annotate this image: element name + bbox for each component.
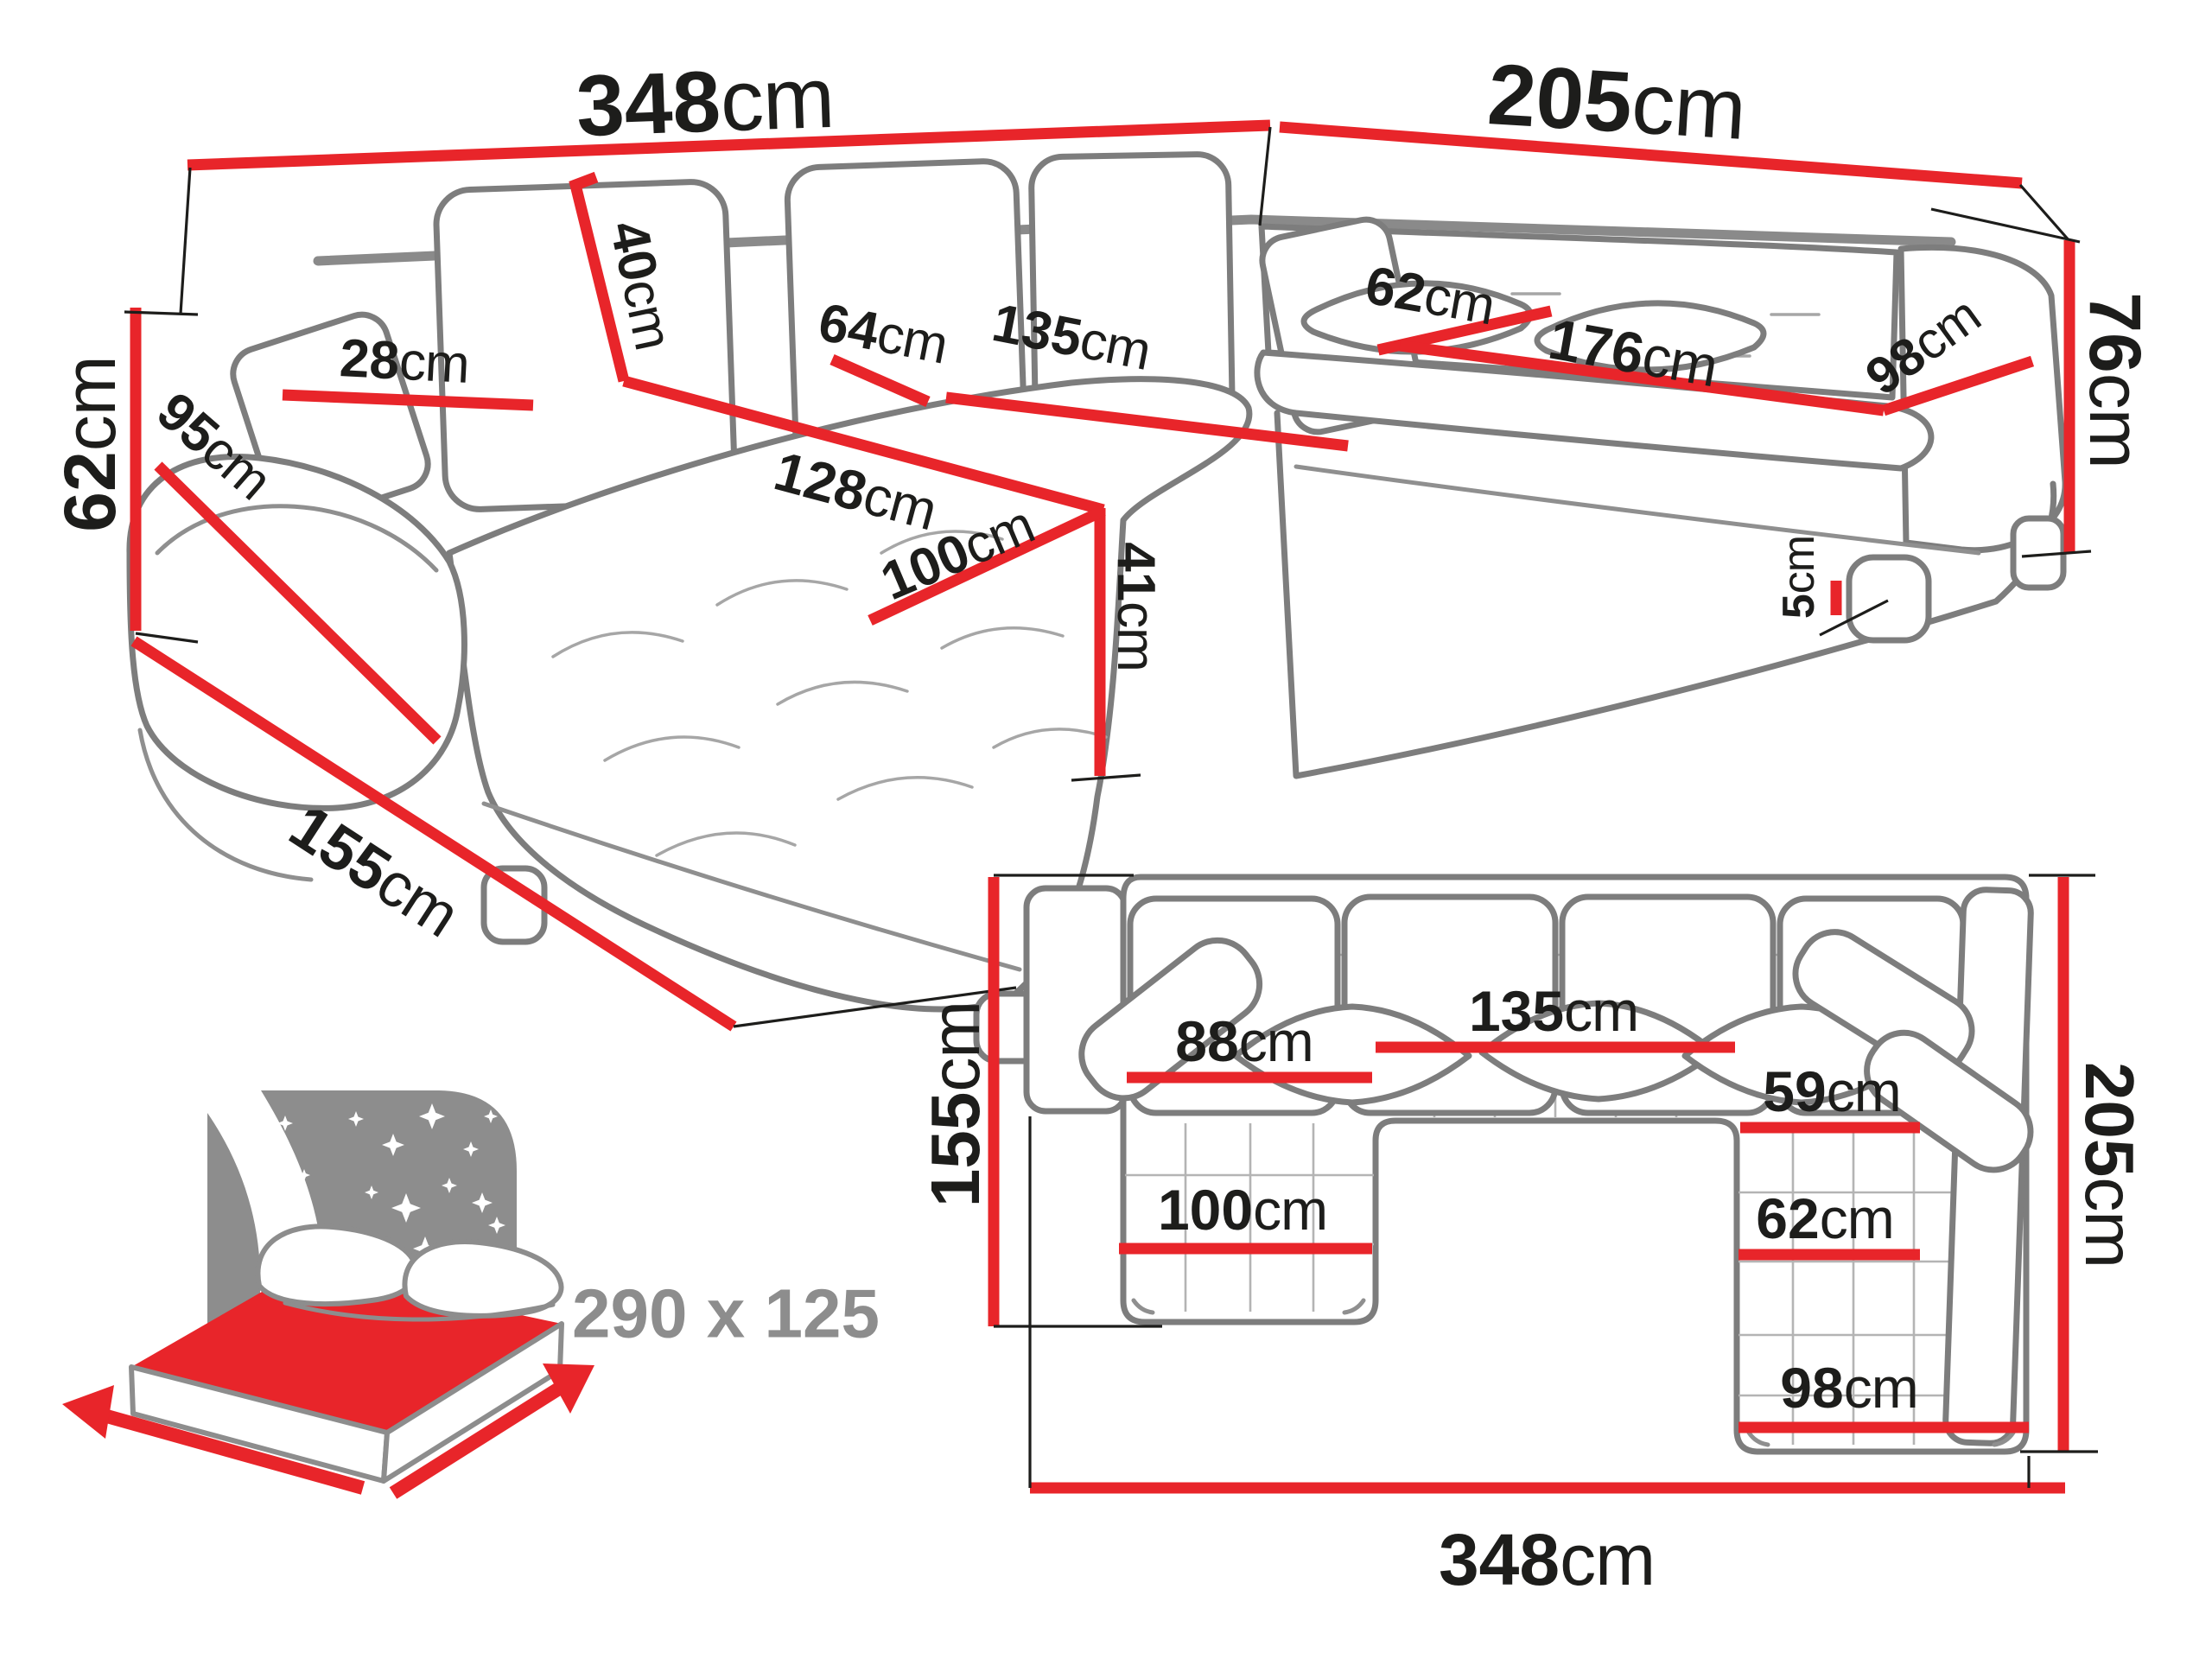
plan-label-right-seat-width: 59cm <box>1763 1059 1900 1123</box>
label-side-depth: 155cm <box>277 791 470 950</box>
label-back-width-left: 348cm <box>575 49 836 155</box>
plan-label-center-width: 135cm <box>1469 979 1638 1043</box>
sleeping-area-label: 290 x 125 <box>572 1275 880 1352</box>
sofa-leg <box>1849 557 1929 640</box>
sofa-bed-icon: 290 x 125 <box>62 1090 880 1493</box>
plan-label-total-depth: 205cm <box>2072 1062 2149 1268</box>
label-seat-height: 41cm <box>1107 542 1166 671</box>
width-arrow-head <box>62 1385 114 1439</box>
diagram-svg: 348cm 205cm 62cm 155cm 95cm 28cm 40cm 64… <box>0 0 2212 1659</box>
plan-view: 135cm 88cm 59cm 62cm 100cm 98cm 155cm 20… <box>917 875 2149 1600</box>
label-back-width-right: 205cm <box>1485 46 1748 158</box>
dimension-diagram: 348cm 205cm 62cm 155cm 95cm 28cm 40cm 64… <box>0 0 2212 1659</box>
plan-label-left-seat-width: 88cm <box>1175 1009 1313 1073</box>
plan-label-left-depth: 155cm <box>917 1001 994 1207</box>
plan-label-total-width: 348cm <box>1439 1519 1655 1600</box>
plan-label-right-chaise-width: 62cm <box>1756 1186 1893 1250</box>
left-armrest <box>130 456 464 808</box>
plan-label-right-bottom-width: 98cm <box>1780 1356 1917 1420</box>
label-armrest-width: 28cm <box>338 328 470 395</box>
label-armrest-height: 62cm <box>49 356 130 531</box>
label-backrest-height: 76cm <box>2075 292 2156 467</box>
label-leg-height: 5cm <box>1774 536 1824 619</box>
front-seam <box>1296 467 1979 553</box>
pillow <box>404 1242 561 1316</box>
plan-label-left-chaise-width: 100cm <box>1158 1178 1327 1242</box>
